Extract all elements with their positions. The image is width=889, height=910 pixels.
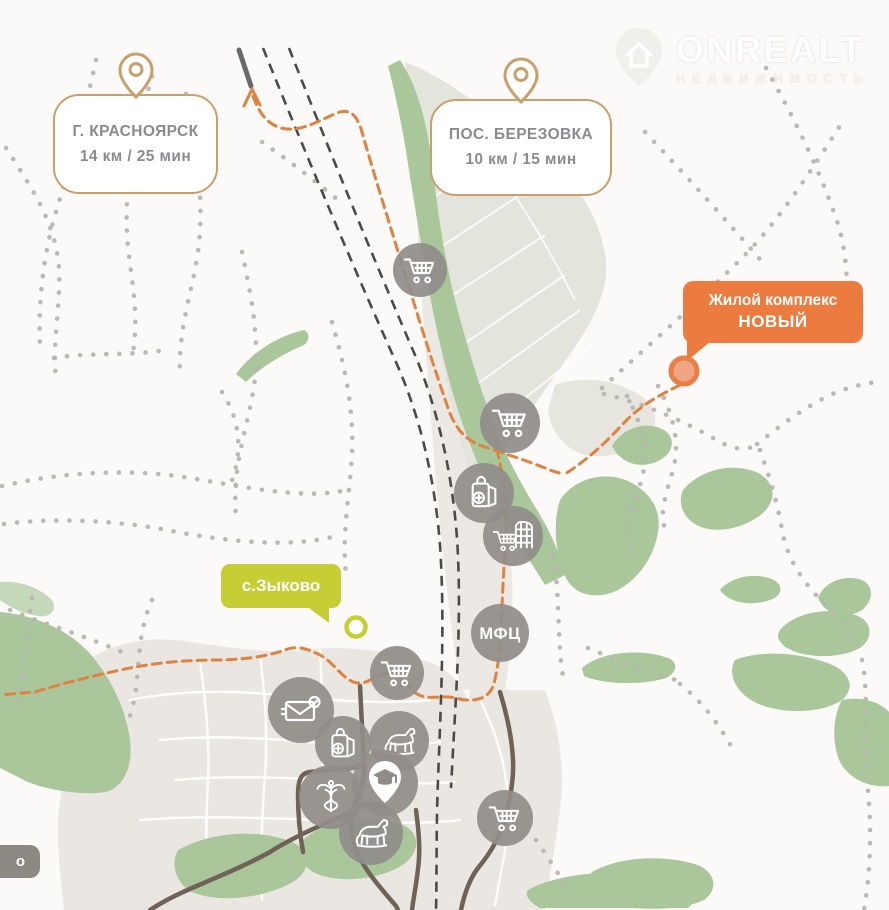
logo-pin-icon bbox=[612, 26, 666, 88]
village-marker bbox=[347, 618, 366, 637]
poi-mfc-circle: МФЦ bbox=[471, 604, 529, 662]
complex-badge: Жилой комплекс НОВЫЙ bbox=[683, 281, 863, 343]
partial-badge-label: о bbox=[16, 853, 25, 870]
brand-logo: ONREALT НЕДВИЖИМОСТЬ bbox=[612, 26, 870, 88]
complex-badge-line2: НОВЫЙ bbox=[738, 311, 807, 333]
mfc-label: МФЦ bbox=[479, 625, 520, 643]
map-pin-icon bbox=[117, 52, 155, 100]
poi-supermarket-cart-icon bbox=[370, 646, 424, 700]
complex-badge-line1: Жилой комплекс bbox=[709, 291, 838, 311]
logo-tagline: НЕДВИЖИМОСТЬ bbox=[676, 72, 870, 86]
callout-subtitle: 10 км / 15 мин bbox=[465, 151, 576, 169]
callout-krasnoyarsk: Г. КРАСНОЯРСК 14 км / 25 мин bbox=[53, 94, 218, 194]
partial-badge: о bbox=[0, 845, 40, 878]
callout-berezovka: ПОС. БЕРЕЗОВКА 10 км / 15 мин bbox=[430, 99, 612, 196]
village-badge-label: с.Зыково bbox=[242, 576, 321, 596]
map-pin-icon bbox=[502, 57, 540, 105]
poi-market-building-cart-icon bbox=[483, 506, 543, 566]
callout-subtitle: 14 км / 25 мин bbox=[80, 148, 191, 166]
village-badge: с.Зыково bbox=[221, 564, 341, 608]
poi-supermarket-cart-icon bbox=[393, 243, 447, 297]
complex-marker bbox=[671, 358, 697, 384]
logo-wordmark: ONREALT bbox=[676, 29, 870, 71]
badge-tail bbox=[687, 341, 713, 361]
badge-tail bbox=[305, 605, 329, 623]
poi-supermarket-cart-icon bbox=[480, 393, 540, 453]
poi-horse-stable-icon bbox=[339, 801, 403, 865]
callout-title: ПОС. БЕРЕЗОВКА bbox=[449, 126, 593, 144]
callout-title: Г. КРАСНОЯРСК bbox=[73, 123, 199, 141]
map-infographic: МФЦ bbox=[0, 0, 889, 910]
poi-supermarket-cart-icon bbox=[477, 790, 533, 846]
logo-text: ONREALT НЕДВИЖИМОСТЬ bbox=[676, 29, 870, 86]
